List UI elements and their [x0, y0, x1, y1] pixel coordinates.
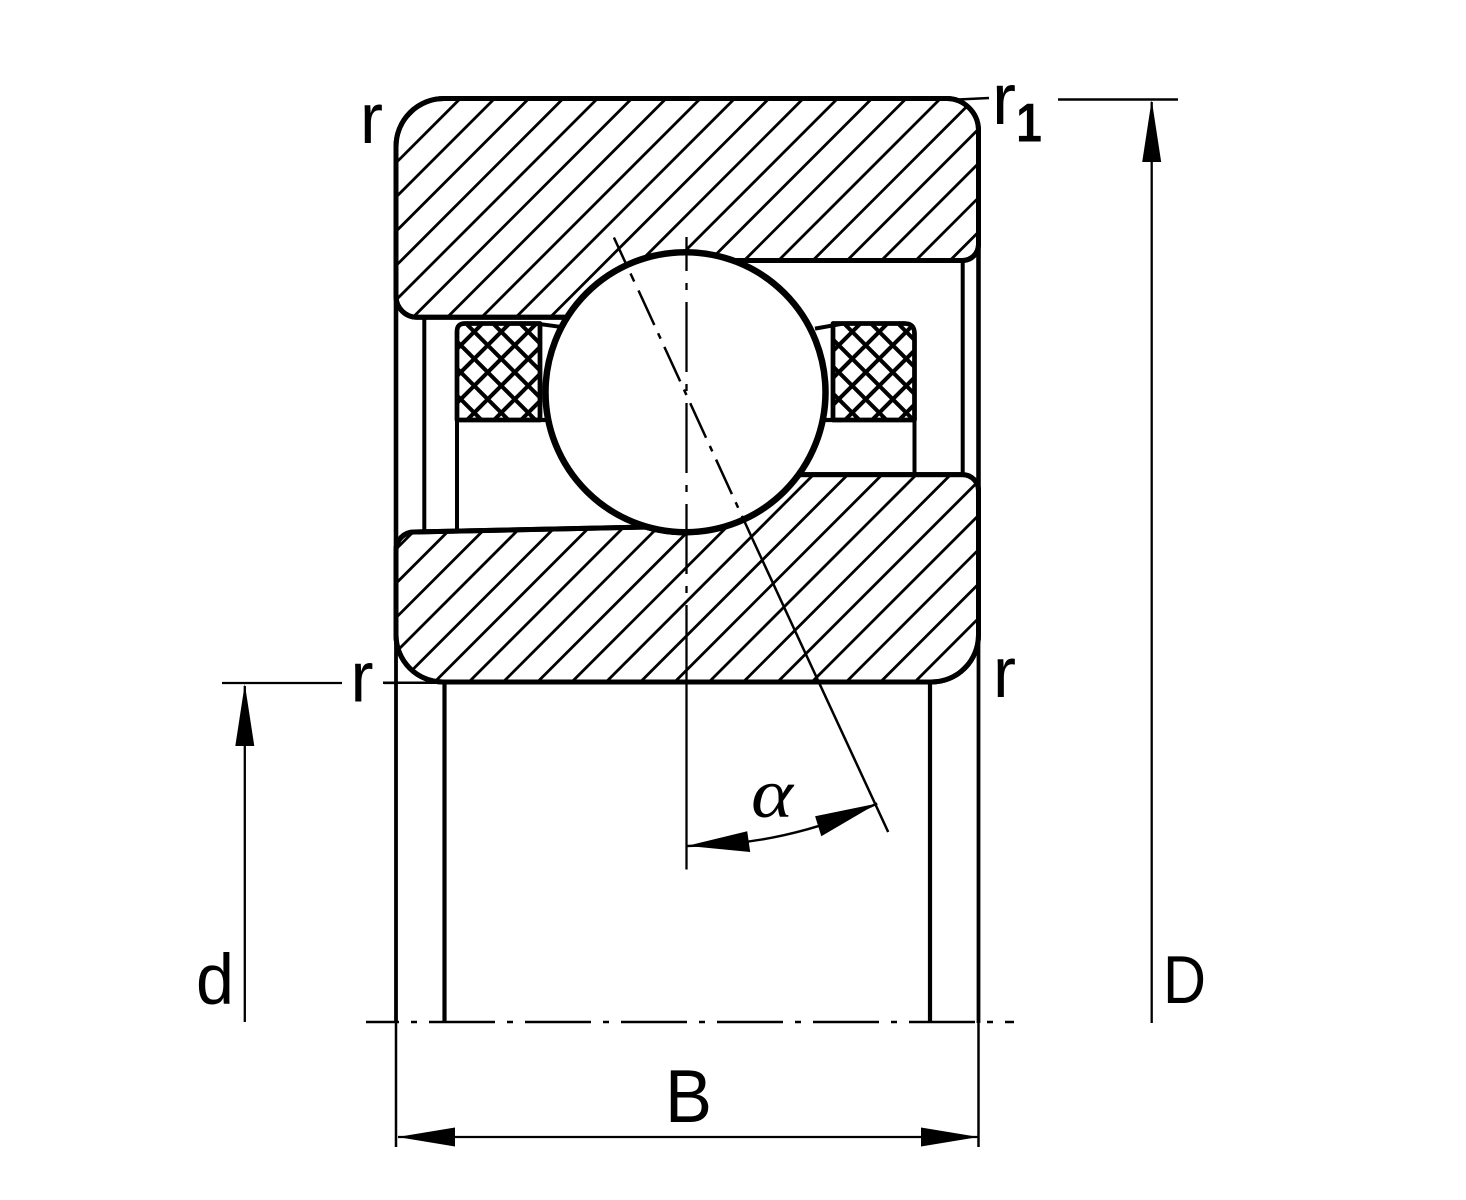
svg-text:r: r: [992, 60, 1016, 140]
svg-text:B: B: [665, 1054, 712, 1138]
svg-text:r: r: [993, 634, 1016, 713]
svg-text:1: 1: [1016, 92, 1042, 154]
svg-text:D: D: [1163, 942, 1206, 1018]
svg-text:r: r: [360, 80, 383, 159]
svg-text:α: α: [751, 756, 794, 833]
svg-text:r: r: [351, 639, 374, 718]
svg-text:d: d: [196, 941, 234, 1020]
